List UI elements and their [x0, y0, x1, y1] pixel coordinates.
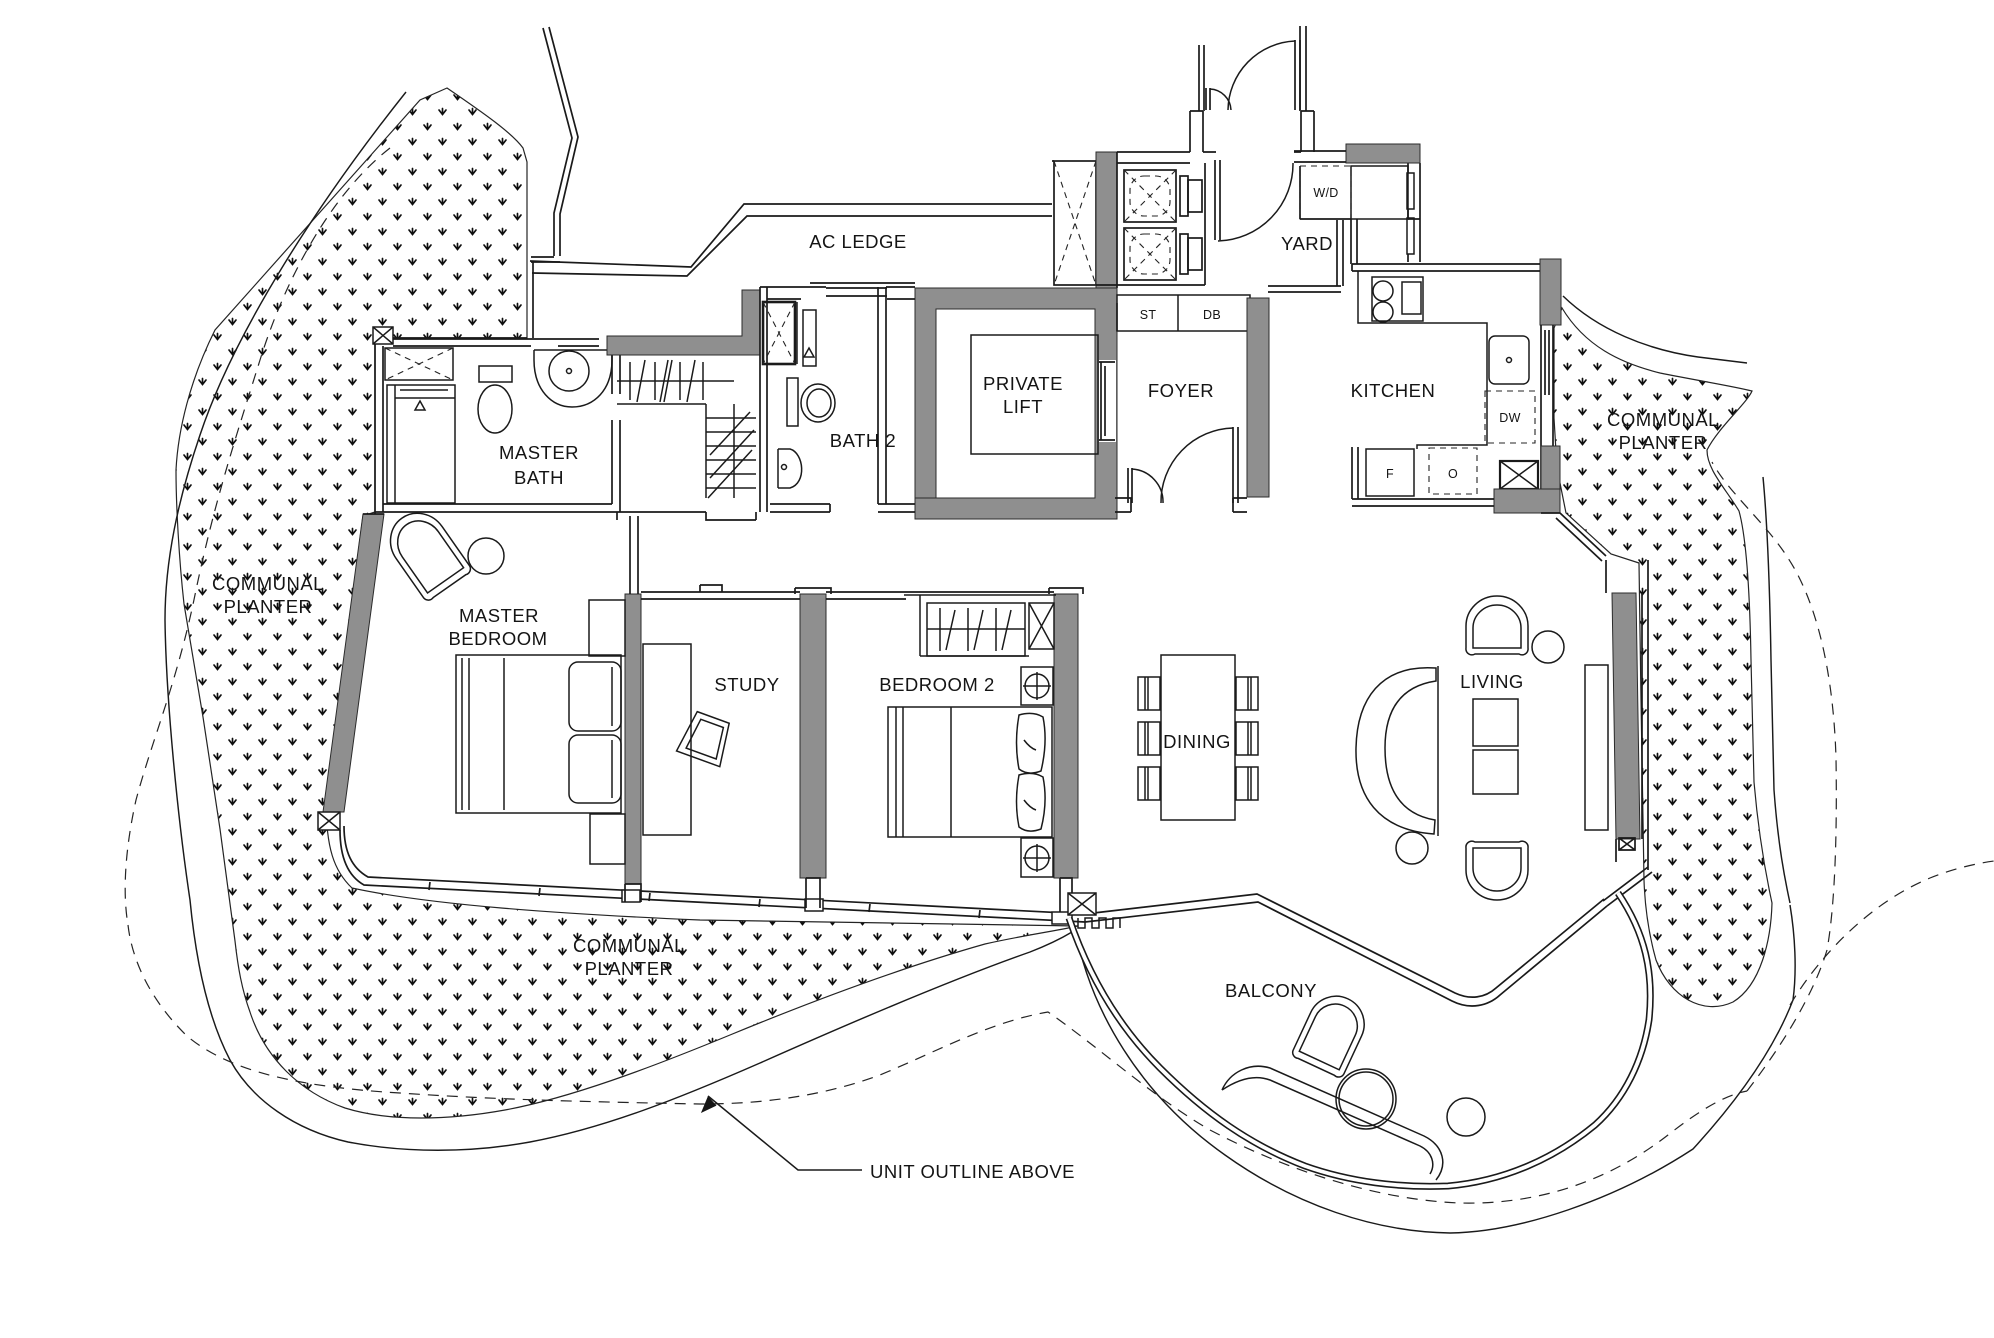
- svg-text:PLANTER: PLANTER: [1619, 432, 1708, 453]
- svg-text:DW: DW: [1499, 411, 1520, 425]
- svg-text:BEDROOM: BEDROOM: [448, 628, 547, 649]
- svg-text:MASTER: MASTER: [459, 605, 539, 626]
- svg-text:FOYER: FOYER: [1148, 380, 1214, 401]
- svg-text:COMMUNAL: COMMUNAL: [1607, 409, 1719, 430]
- svg-text:AC LEDGE: AC LEDGE: [809, 231, 907, 252]
- svg-text:PLANTER: PLANTER: [585, 958, 674, 979]
- svg-text:DINING: DINING: [1163, 731, 1231, 752]
- svg-text:LIVING: LIVING: [1460, 671, 1524, 692]
- svg-text:BATH: BATH: [514, 467, 564, 488]
- svg-text:YARD: YARD: [1281, 233, 1333, 254]
- svg-text:COMMUNAL: COMMUNAL: [212, 573, 324, 594]
- svg-text:F: F: [1386, 467, 1394, 481]
- svg-text:O: O: [1448, 467, 1458, 481]
- svg-text:BALCONY: BALCONY: [1225, 980, 1317, 1001]
- svg-text:MASTER: MASTER: [499, 442, 579, 463]
- svg-text:W/D: W/D: [1313, 186, 1338, 200]
- svg-text:LIFT: LIFT: [1003, 396, 1043, 417]
- svg-text:PRIVATE: PRIVATE: [983, 373, 1063, 394]
- svg-text:STUDY: STUDY: [714, 674, 779, 695]
- svg-text:ST: ST: [1140, 308, 1157, 322]
- svg-text:KITCHEN: KITCHEN: [1351, 380, 1436, 401]
- svg-text:PLANTER: PLANTER: [224, 596, 313, 617]
- svg-text:BATH 2: BATH 2: [830, 430, 896, 451]
- svg-text:DB: DB: [1203, 308, 1221, 322]
- svg-text:COMMUNAL: COMMUNAL: [573, 935, 685, 956]
- svg-text:UNIT OUTLINE ABOVE: UNIT OUTLINE ABOVE: [870, 1161, 1075, 1182]
- svg-text:BEDROOM 2: BEDROOM 2: [879, 674, 995, 695]
